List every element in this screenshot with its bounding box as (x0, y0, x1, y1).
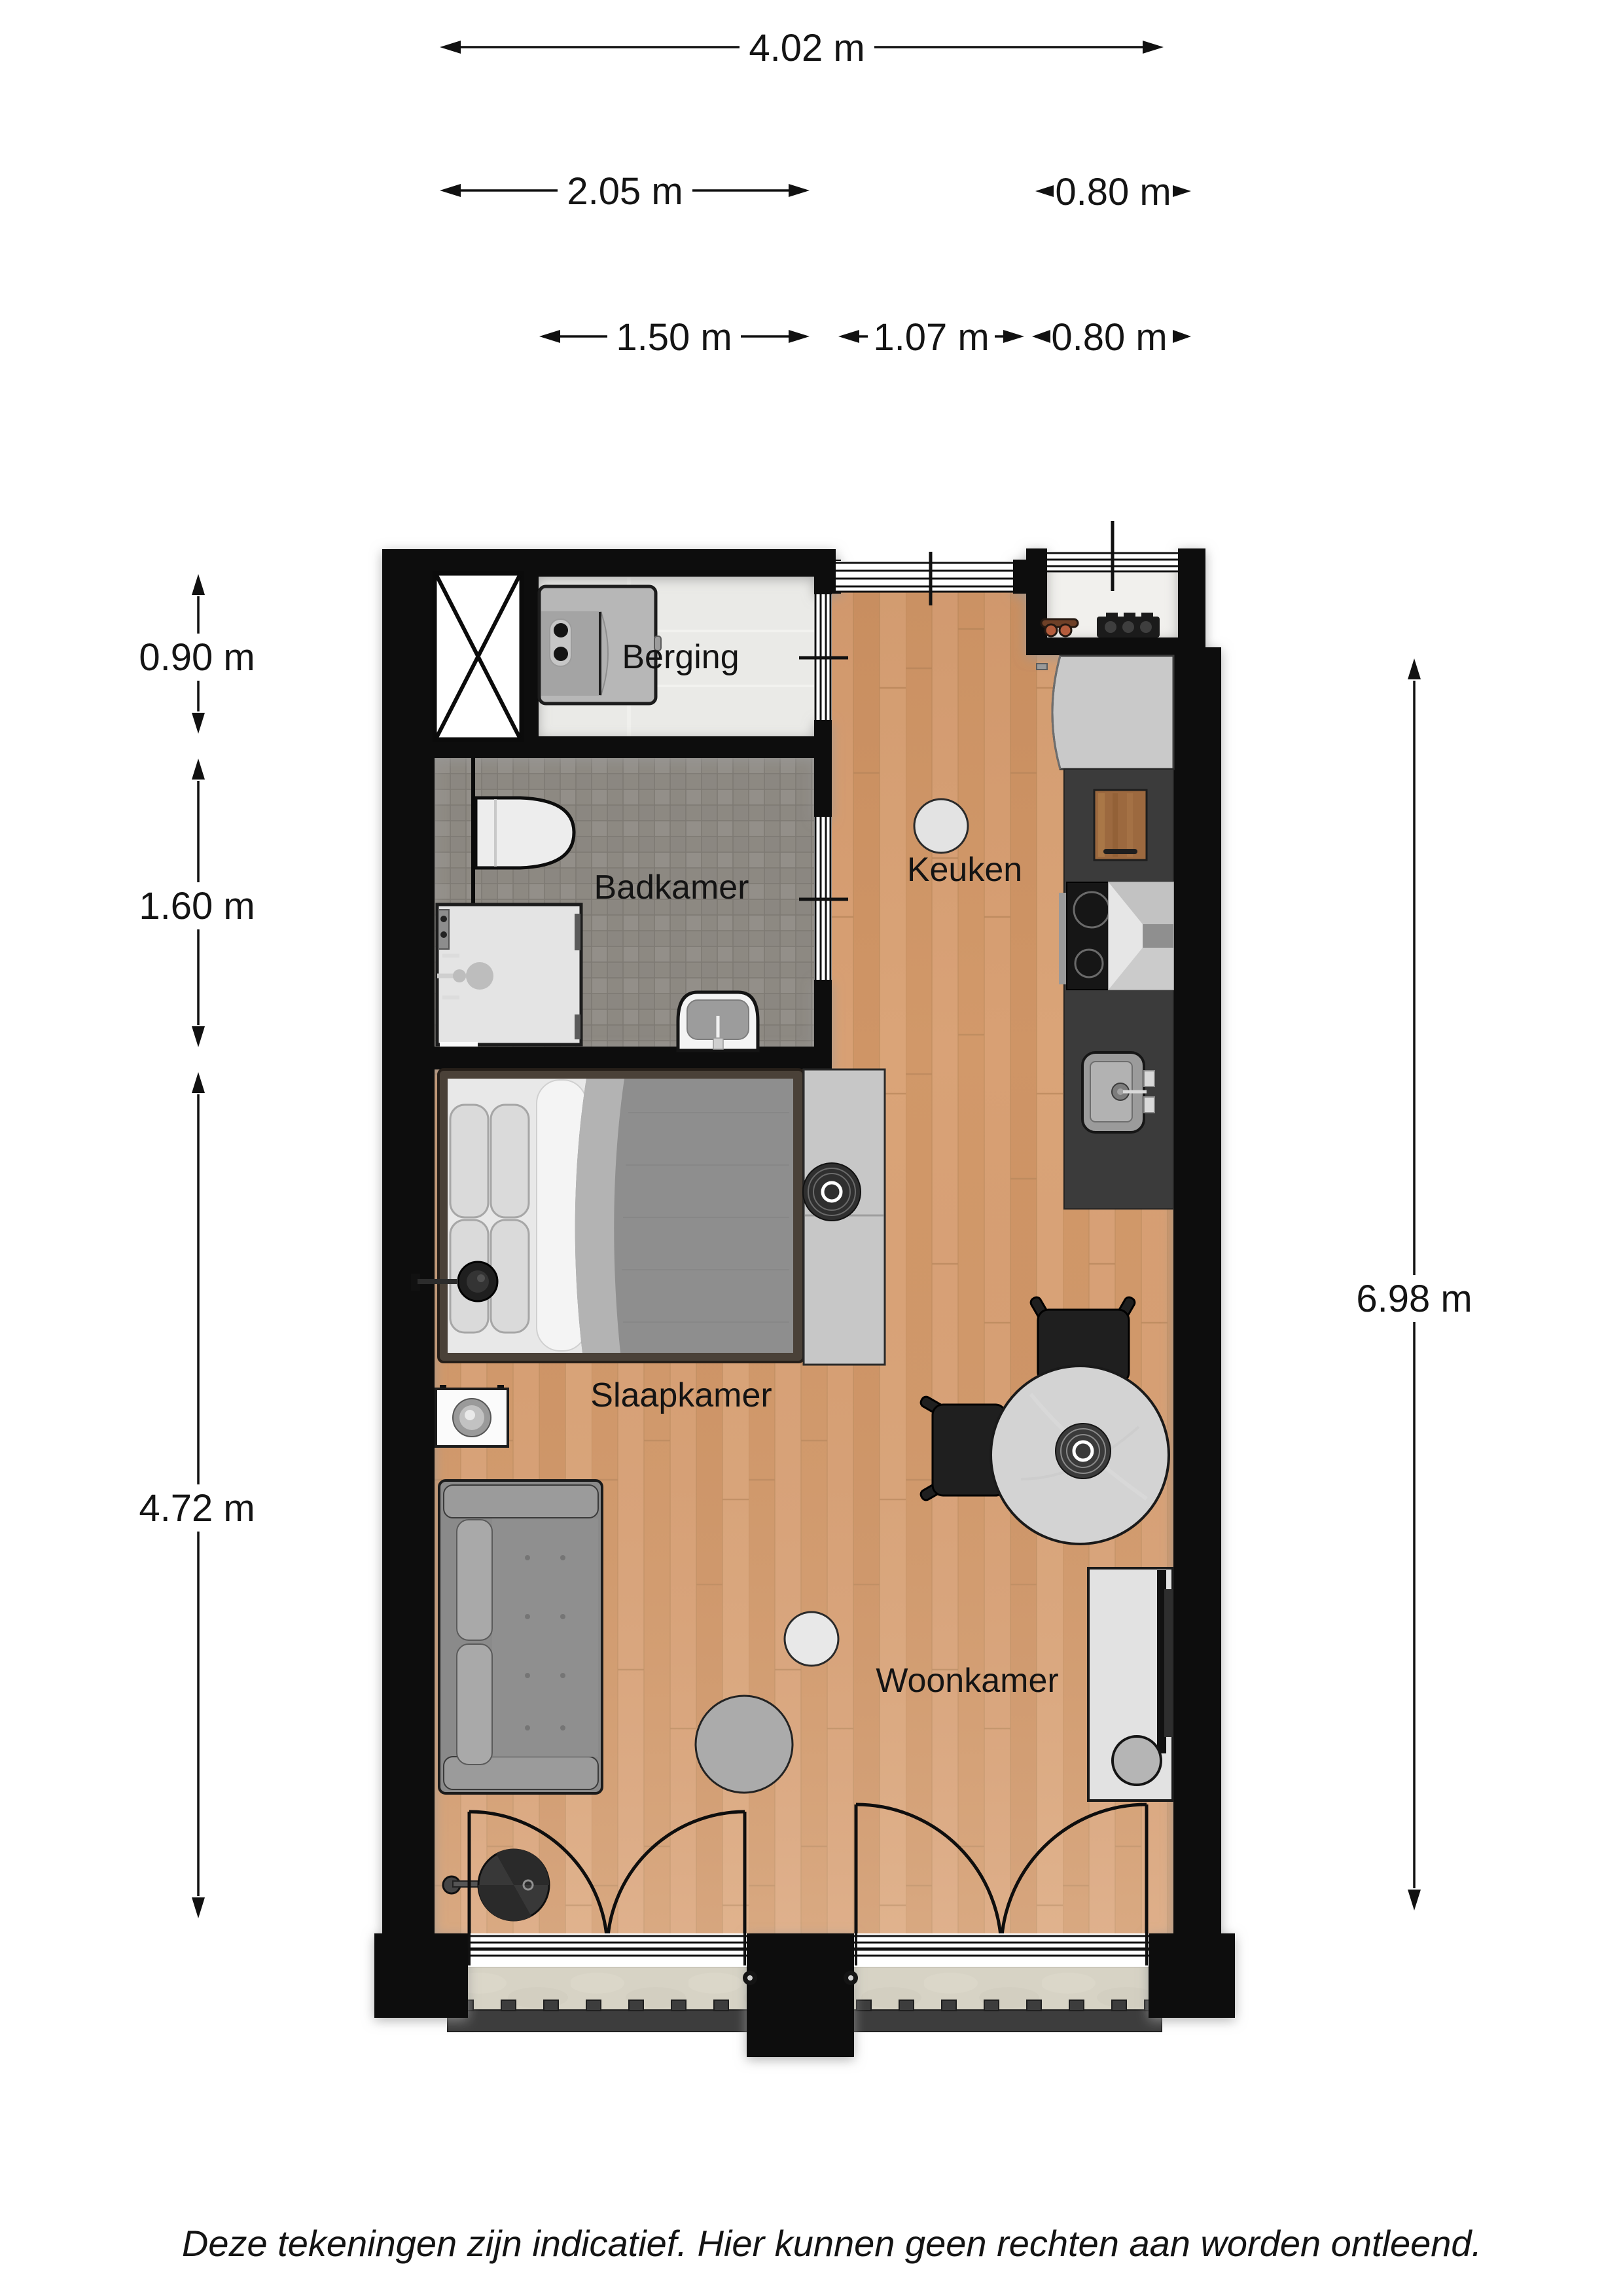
svg-text:0.80 m: 0.80 m (1051, 316, 1167, 359)
svg-text:1.50 m: 1.50 m (616, 316, 732, 359)
svg-text:Keuken: Keuken (907, 851, 1022, 889)
svg-text:1.60 m: 1.60 m (139, 885, 255, 927)
svg-text:0.90 m: 0.90 m (139, 636, 255, 679)
svg-text:Deze tekeningen zijn indicatie: Deze tekeningen zijn indicatief. Hier ku… (182, 2223, 1482, 2264)
svg-text:Badkamer: Badkamer (594, 869, 749, 906)
svg-text:Woonkamer: Woonkamer (876, 1662, 1058, 1700)
svg-text:Berging: Berging (622, 638, 739, 676)
svg-text:2.05 m: 2.05 m (567, 170, 683, 213)
svg-text:6.98 m: 6.98 m (1356, 1278, 1472, 1320)
svg-text:4.72 m: 4.72 m (139, 1487, 255, 1530)
svg-text:4.02 m: 4.02 m (749, 27, 865, 69)
svg-text:0.80 m: 0.80 m (1055, 171, 1171, 213)
svg-text:1.07 m: 1.07 m (873, 316, 989, 359)
svg-text:Slaapkamer: Slaapkamer (590, 1376, 772, 1414)
